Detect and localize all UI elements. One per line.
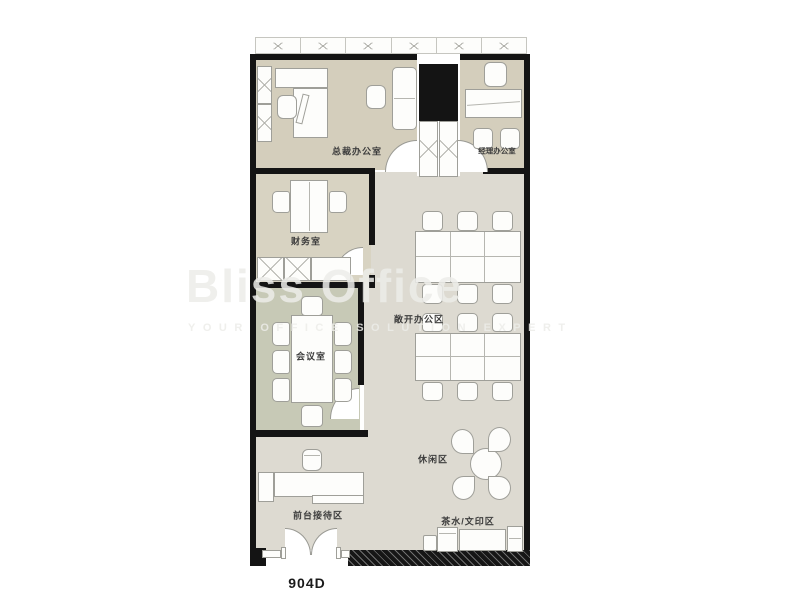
- entrance-door-post: [336, 547, 341, 559]
- finance-desks: [290, 180, 328, 233]
- entrance-sill: [262, 550, 281, 558]
- finance-chair: [272, 191, 290, 213]
- window-glass-icon: [454, 42, 463, 49]
- desk-divider: [309, 182, 310, 231]
- ceo-chair: [277, 95, 297, 119]
- window-segment: [482, 38, 526, 53]
- office-chair: [492, 382, 513, 401]
- shaft-cabinet: [419, 121, 438, 177]
- desk-cell: [416, 357, 451, 380]
- desk-cell: [451, 357, 486, 380]
- ceo-office-label: 总裁办公室: [332, 145, 382, 158]
- ceo-cabinet: [257, 104, 272, 142]
- lounge-chair: [452, 476, 475, 500]
- bottom-hatched-wall: [348, 550, 530, 566]
- right-wall: [524, 54, 530, 550]
- desk-cell: [485, 334, 520, 357]
- meeting-room-label: 会议室: [296, 350, 326, 363]
- lounge-label: 休闲区: [418, 453, 448, 466]
- finance-room-label: 财务室: [291, 235, 321, 248]
- stool-line: [304, 455, 320, 456]
- watermark-tagline: YOUR OFFICE SOLUTION EXPERT: [188, 322, 573, 334]
- manager-office-label: 经理办公室: [478, 146, 516, 157]
- office-chair: [492, 211, 513, 231]
- window-segment: [437, 38, 482, 53]
- lounge-chair: [488, 427, 511, 452]
- open-office-desk-bank: [415, 333, 521, 381]
- window-segment: [301, 38, 346, 53]
- office-chair: [457, 382, 478, 401]
- window-segment: [346, 38, 391, 53]
- finance-right-wall-upper: [369, 174, 375, 245]
- entrance-door-post: [281, 547, 286, 559]
- meeting-chair: [334, 378, 352, 402]
- window-band: [255, 37, 527, 54]
- window-glass-icon: [409, 42, 418, 49]
- meeting-chair: [301, 405, 323, 427]
- shaft-cabinet: [439, 121, 458, 177]
- manager-desk: [465, 89, 522, 118]
- office-chair: [492, 284, 513, 304]
- window-segment: [392, 38, 437, 53]
- floor-plan-canvas: 总裁办公室 经理办公室 财务室 会议室 敞开办公区 休闲区 茶水/文印区 前台接…: [0, 0, 800, 600]
- reception-desk-side: [258, 472, 274, 502]
- window-glass-icon: [274, 42, 283, 49]
- desk-cell: [485, 257, 520, 282]
- reception-shelf: [312, 495, 364, 504]
- ceo-coffee-table: [366, 85, 386, 109]
- ceo-cabinet: [257, 66, 272, 104]
- ceo-finance-wall: [252, 168, 375, 174]
- office-chair: [457, 211, 478, 231]
- top-wall-right: [460, 54, 530, 60]
- top-wall-left: [250, 54, 417, 60]
- window-glass-icon: [319, 42, 328, 49]
- elevator-shaft: [419, 64, 458, 121]
- office-chair: [422, 211, 443, 231]
- entrance-sill: [341, 550, 350, 558]
- manager-chair: [484, 62, 507, 87]
- reception-label: 前台接待区: [293, 509, 343, 522]
- meeting-chair: [272, 350, 290, 374]
- sofa-cushion-divider: [394, 98, 415, 99]
- tea-counter: [459, 529, 506, 551]
- finance-chair: [329, 191, 347, 213]
- meeting-reception-wall: [252, 430, 368, 437]
- lounge-chair: [451, 429, 474, 454]
- reception-desk: [274, 472, 364, 497]
- manager-office-wall: [483, 168, 524, 174]
- reception-stool: [302, 449, 322, 471]
- ceo-sofa: [392, 67, 417, 130]
- office-chair: [422, 382, 443, 401]
- meeting-chair: [334, 350, 352, 374]
- tea-print-label: 茶水/文印区: [441, 515, 495, 528]
- printer-line: [439, 533, 456, 534]
- desk-cell: [416, 334, 451, 357]
- desk-cell: [485, 357, 520, 380]
- fridge: [507, 526, 523, 552]
- window-glass-icon: [499, 42, 508, 49]
- plan-code-label: 904D: [288, 575, 325, 591]
- watermark-brand: Bliss Office: [186, 263, 463, 309]
- meeting-chair: [272, 378, 290, 402]
- desk-cell: [416, 232, 451, 257]
- window-glass-icon: [364, 42, 373, 49]
- printer: [437, 527, 458, 552]
- lounge-chair: [488, 476, 511, 500]
- desk-cell: [451, 334, 486, 357]
- desk-cell: [485, 232, 520, 257]
- fridge-line: [509, 538, 521, 539]
- window-segment: [256, 38, 301, 53]
- desk-cell: [451, 232, 486, 257]
- desk-edge-line: [467, 101, 520, 106]
- ceo-desk-top: [275, 68, 328, 88]
- trash-bin: [423, 535, 437, 551]
